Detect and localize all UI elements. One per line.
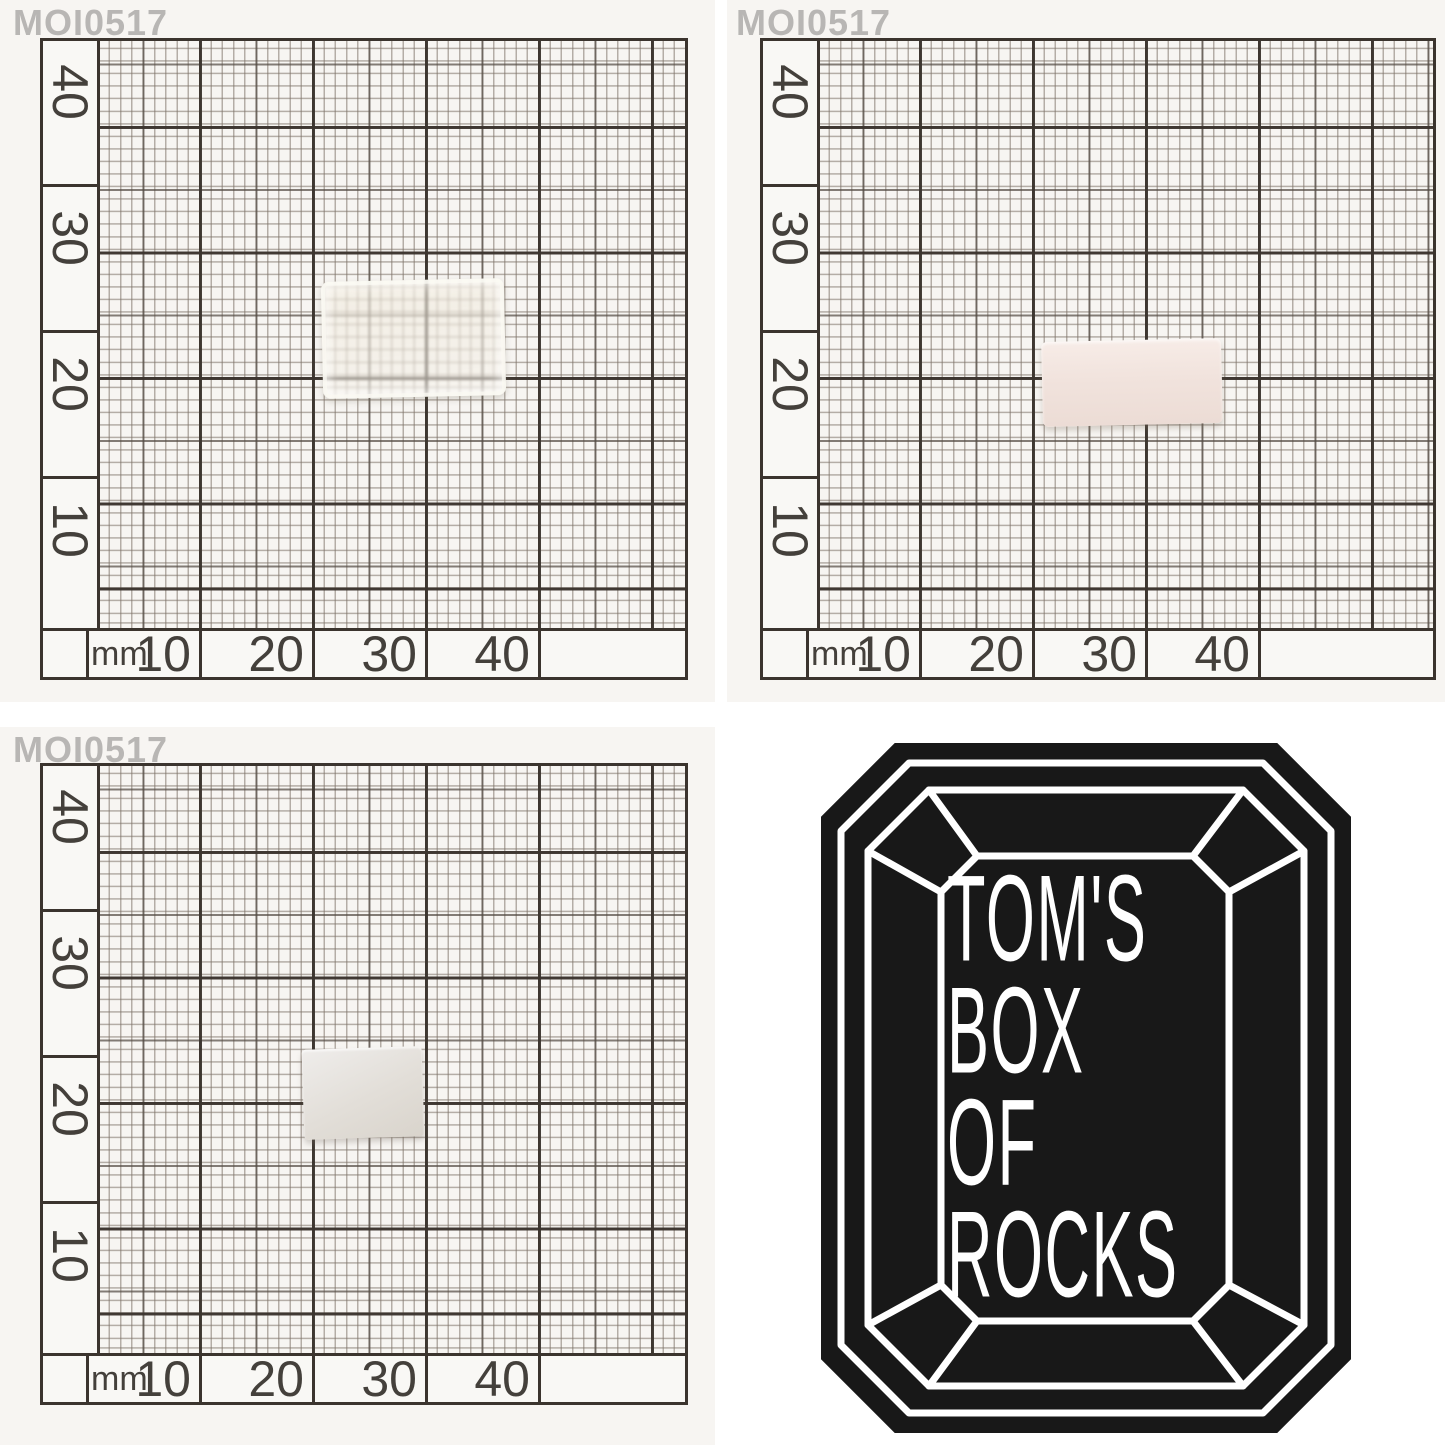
specimen-photo-top-view-translucent (321, 278, 506, 399)
y-ruler: 40 30 20 10 (763, 41, 820, 628)
ruler-divider (425, 631, 428, 677)
photo-panel-top-left: MOI0517 40 30 20 10 mm 10 (0, 0, 715, 702)
y-tick-30: 30 (761, 210, 819, 266)
x-tick-40: 40 (1150, 625, 1250, 683)
y-tick-10: 10 (761, 502, 819, 558)
photo-panel-top-right: MOI0517 40 30 20 10 mm 10 (727, 0, 1445, 702)
y-ruler-cell: 30 (43, 912, 97, 1058)
x-tick-40: 40 (430, 625, 530, 683)
logo-line-1: TOM'S (947, 863, 1179, 975)
y-tick-30: 30 (41, 935, 99, 991)
y-ruler-cell: 30 (763, 187, 817, 333)
y-tick-20: 20 (41, 1081, 99, 1137)
ruler-divider (1032, 631, 1035, 677)
mm-grid (806, 41, 1433, 628)
specimen-photo-side-view (302, 1046, 425, 1140)
y-tick-40: 40 (41, 789, 99, 845)
logo-line-3: OF (947, 1087, 1179, 1199)
y-ruler-cell: 40 (763, 41, 817, 187)
y-ruler: 40 30 20 10 (43, 41, 100, 628)
y-ruler-cell: 40 (43, 766, 97, 912)
ruler-divider (538, 631, 541, 677)
photo-panel-bottom-left: MOI0517 40 30 20 10 mm 10 (0, 727, 715, 1445)
ruler-divider (86, 631, 89, 677)
x-ruler: mm 10 20 30 40 (43, 628, 685, 677)
ruler-divider (538, 1356, 541, 1402)
y-ruler: 40 30 20 10 (43, 766, 100, 1353)
y-ruler-cell: 10 (43, 479, 97, 628)
y-tick-20: 20 (761, 356, 819, 412)
x-tick-10: 10 (91, 625, 191, 683)
y-tick-30: 30 (41, 210, 99, 266)
ruler-divider (806, 631, 809, 677)
brand-logo-panel: TOM'S BOX OF ROCKS (727, 727, 1445, 1445)
ruler-divider (1145, 631, 1148, 677)
x-tick-40: 40 (430, 1350, 530, 1408)
y-ruler-cell: 10 (43, 1204, 97, 1353)
ruler-divider (199, 1356, 202, 1402)
y-tick-20: 20 (41, 356, 99, 412)
logo-line-2: BOX (947, 975, 1179, 1087)
photo-collage: MOI0517 40 30 20 10 mm 10 (0, 0, 1445, 1445)
y-tick-40: 40 (761, 64, 819, 120)
ruler-divider (199, 631, 202, 677)
y-ruler-cell: 20 (763, 333, 817, 479)
ruler-divider (312, 631, 315, 677)
logo-line-4: ROCKS (947, 1199, 1179, 1311)
y-ruler-cell: 10 (763, 479, 817, 628)
x-tick-10: 10 (811, 625, 911, 683)
x-tick-20: 20 (204, 1350, 304, 1408)
y-tick-10: 10 (41, 502, 99, 558)
x-tick-20: 20 (204, 625, 304, 683)
x-tick-30: 30 (1037, 625, 1137, 683)
ruler-divider (1258, 631, 1261, 677)
x-tick-20: 20 (924, 625, 1024, 683)
ruler-divider (86, 1356, 89, 1402)
logo-wordmark: TOM'S BOX OF ROCKS (947, 863, 1179, 1311)
x-tick-30: 30 (317, 1350, 417, 1408)
ruler-divider (425, 1356, 428, 1402)
x-ruler: mm 10 20 30 40 (43, 1353, 685, 1402)
y-ruler-cell: 20 (43, 1058, 97, 1204)
ruler-divider (312, 1356, 315, 1402)
y-ruler-cell: 40 (43, 41, 97, 187)
x-tick-30: 30 (317, 625, 417, 683)
y-tick-40: 40 (41, 64, 99, 120)
y-ruler-cell: 30 (43, 187, 97, 333)
specimen-photo-top-view-opaque (1041, 338, 1223, 427)
y-tick-10: 10 (41, 1227, 99, 1283)
ruler-divider (919, 631, 922, 677)
x-ruler: mm 10 20 30 40 (763, 628, 1433, 677)
x-tick-10: 10 (91, 1350, 191, 1408)
y-ruler-cell: 20 (43, 333, 97, 479)
emerald-gem-logo-graphic: TOM'S BOX OF ROCKS (821, 743, 1351, 1433)
